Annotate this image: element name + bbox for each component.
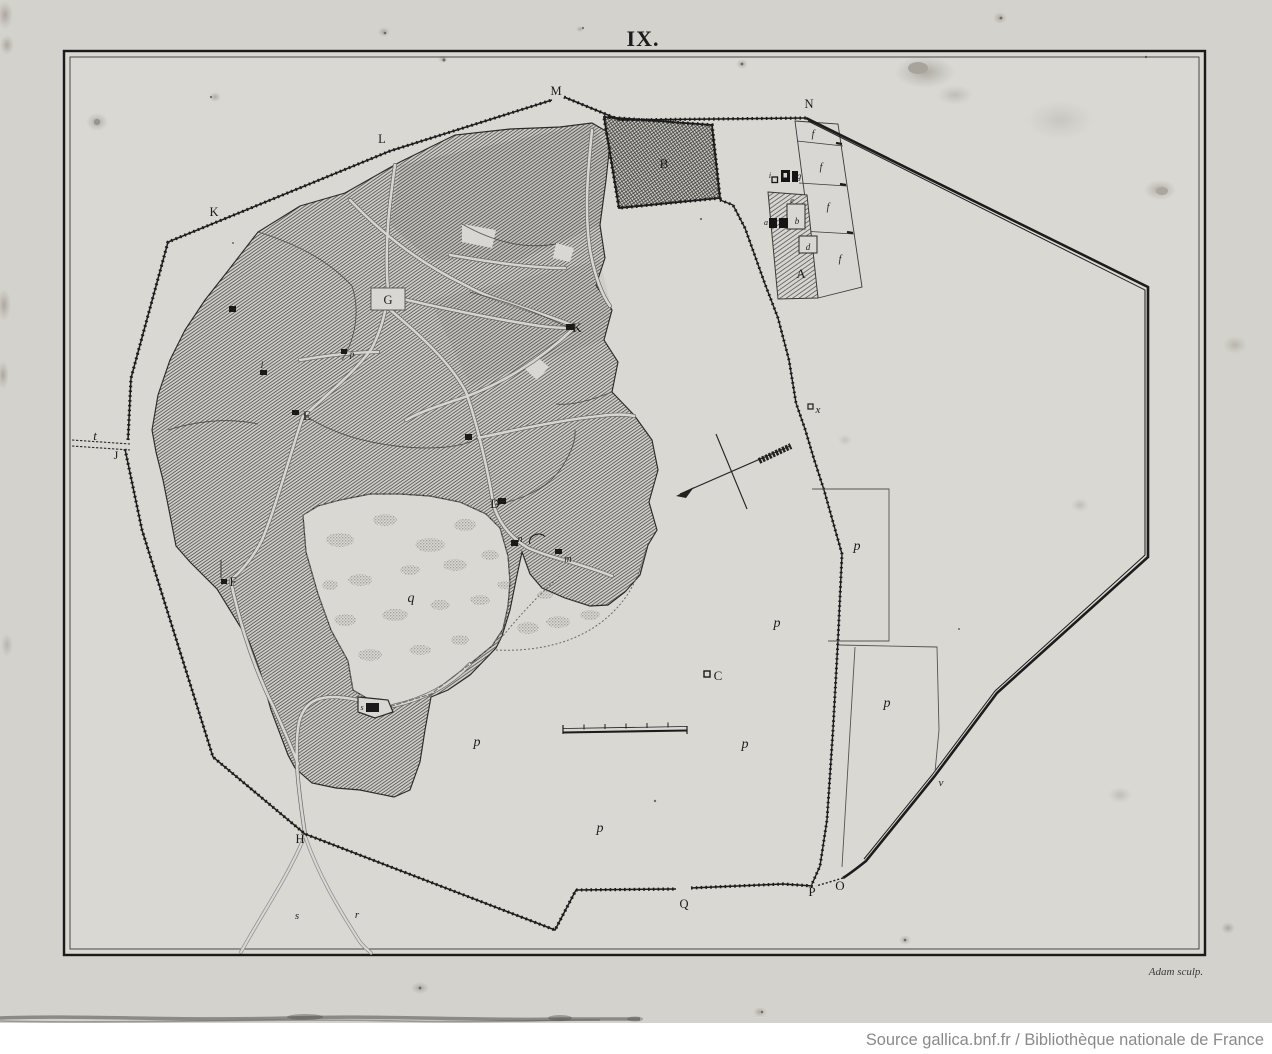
svg-text:v: v bbox=[939, 777, 944, 789]
svg-text:K: K bbox=[572, 320, 582, 335]
svg-text:C: C bbox=[714, 668, 723, 683]
svg-text:p: p bbox=[596, 821, 604, 836]
svg-text:G: G bbox=[383, 293, 392, 307]
svg-text:p: p bbox=[349, 349, 355, 359]
svg-text:i: i bbox=[769, 171, 771, 180]
svg-text:x: x bbox=[815, 404, 821, 416]
svg-text:p: p bbox=[773, 616, 781, 631]
svg-text:N: N bbox=[804, 97, 813, 111]
svg-text:F: F bbox=[229, 574, 236, 589]
svg-text:a: a bbox=[764, 218, 768, 227]
svg-text:E: E bbox=[303, 408, 311, 423]
svg-text:g: g bbox=[797, 171, 802, 181]
svg-text:L: L bbox=[378, 132, 386, 146]
svg-text:Adam sculp.: Adam sculp. bbox=[1148, 966, 1203, 978]
svg-text:H: H bbox=[295, 832, 304, 846]
svg-text:q: q bbox=[408, 591, 415, 606]
svg-text:t: t bbox=[93, 428, 97, 443]
svg-text:K: K bbox=[209, 205, 218, 219]
svg-text:s: s bbox=[295, 910, 299, 922]
svg-text:p: p bbox=[741, 737, 749, 752]
svg-text:D: D bbox=[490, 496, 499, 511]
svg-text:b: b bbox=[795, 216, 800, 226]
svg-text:p: p bbox=[473, 735, 481, 750]
svg-text:m: m bbox=[564, 554, 571, 565]
svg-text:s: s bbox=[360, 703, 363, 712]
svg-text:e: e bbox=[790, 196, 794, 205]
svg-text:P: P bbox=[808, 884, 815, 899]
svg-text:Q: Q bbox=[679, 897, 688, 911]
svg-text:p: p bbox=[853, 539, 861, 554]
svg-text:O: O bbox=[835, 878, 844, 893]
svg-text:A: A bbox=[796, 266, 806, 281]
svg-text:r: r bbox=[355, 909, 360, 921]
svg-text:d: d bbox=[806, 242, 811, 252]
svg-text:p: p bbox=[883, 696, 891, 711]
svg-text:B: B bbox=[660, 156, 669, 171]
svg-text:IX.: IX. bbox=[627, 26, 660, 51]
svg-text:n: n bbox=[518, 534, 523, 545]
svg-text:Source gallica.bnf.fr / Biblio: Source gallica.bnf.fr / Bibliothèque nat… bbox=[866, 1031, 1264, 1049]
svg-text:J: J bbox=[114, 448, 119, 462]
svg-text:M: M bbox=[550, 84, 561, 98]
